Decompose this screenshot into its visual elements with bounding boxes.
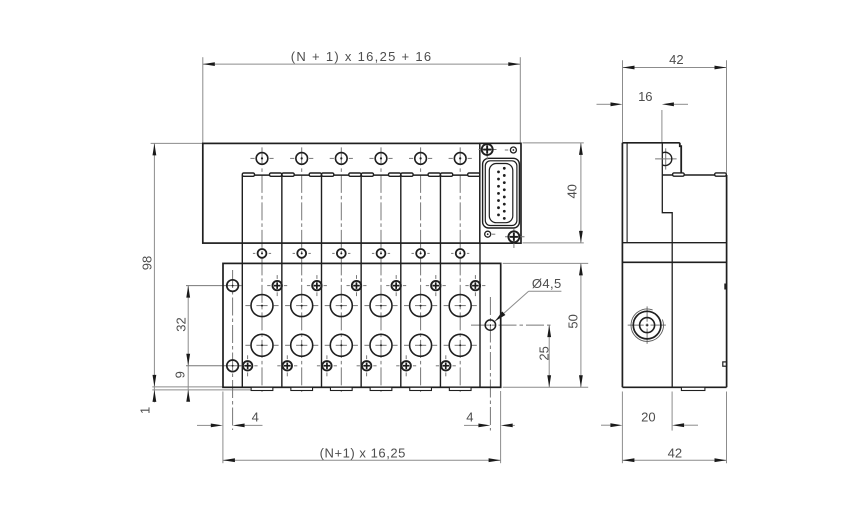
svg-text:4: 4	[252, 409, 259, 424]
svg-text:25: 25	[536, 346, 551, 360]
svg-text:(N+1) x 16,25: (N+1) x 16,25	[320, 446, 406, 461]
svg-text:32: 32	[174, 317, 189, 331]
svg-text:16: 16	[638, 89, 652, 104]
svg-text:50: 50	[566, 314, 581, 328]
svg-text:20: 20	[641, 409, 655, 424]
svg-text:(N + 1) x 16,25 + 16: (N + 1) x 16,25 + 16	[291, 49, 433, 64]
svg-text:9: 9	[172, 371, 187, 378]
svg-text:1: 1	[137, 407, 152, 414]
svg-text:98: 98	[140, 256, 155, 270]
svg-text:42: 42	[669, 52, 683, 67]
svg-text:Ø4,5: Ø4,5	[532, 276, 562, 291]
svg-text:4: 4	[466, 409, 473, 424]
svg-text:40: 40	[565, 184, 580, 198]
svg-text:42: 42	[668, 446, 682, 461]
